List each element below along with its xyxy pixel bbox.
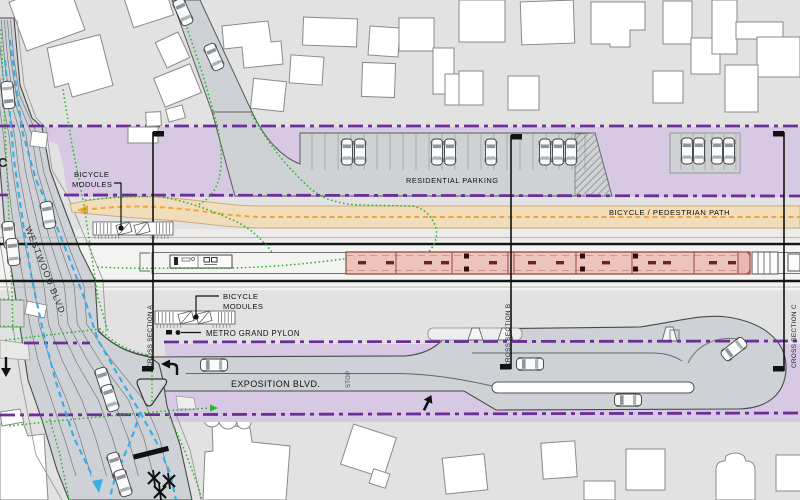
svg-text:BICYCLE: BICYCLE [74,170,109,179]
svg-text:BICYCLE: BICYCLE [223,292,258,301]
svg-text:STOP: STOP [346,371,352,388]
svg-text:MODULES: MODULES [72,180,112,189]
svg-text:CROSS SECTION C: CROSS SECTION C [791,304,798,368]
svg-text:CROSS SECTION A: CROSS SECTION A [147,304,154,368]
svg-text:METRO GRAND PYLON: METRO GRAND PYLON [206,329,300,338]
svg-text:CROSS SECTION B: CROSS SECTION B [505,304,512,367]
svg-text:RESIDENTIAL PARKING: RESIDENTIAL PARKING [406,176,498,185]
svg-text:C: C [0,155,8,170]
svg-text:BICYCLE / PEDESTRIAN PATH: BICYCLE / PEDESTRIAN PATH [609,208,730,217]
svg-text:EXPOSITION BLVD.: EXPOSITION BLVD. [231,379,320,389]
svg-text:MODULES: MODULES [223,302,263,311]
